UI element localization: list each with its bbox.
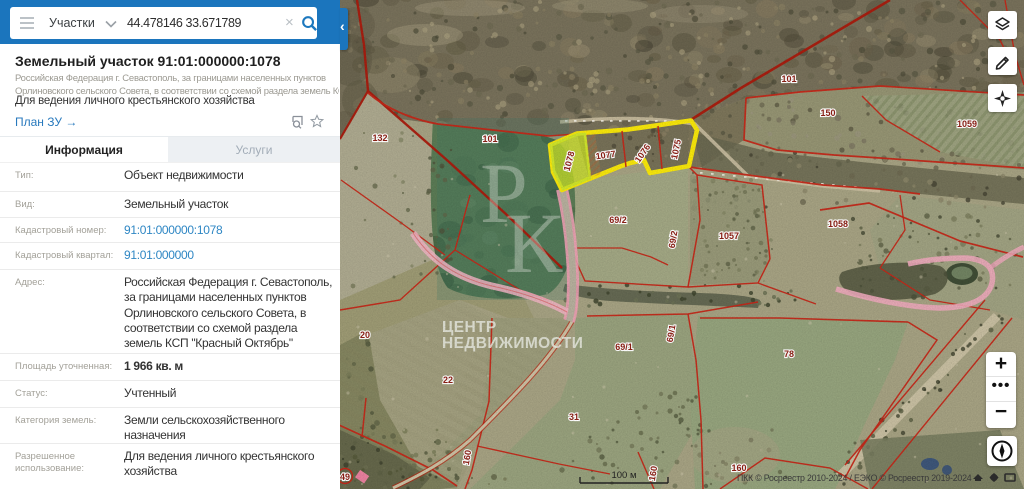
svg-text:100 м: 100 м (611, 470, 636, 481)
svg-text:ПКК © Росреестр 2010-2024 / ЕЭ: ПКК © Росреестр 2010-2024 / ЕЭКО © Росре… (737, 473, 972, 483)
